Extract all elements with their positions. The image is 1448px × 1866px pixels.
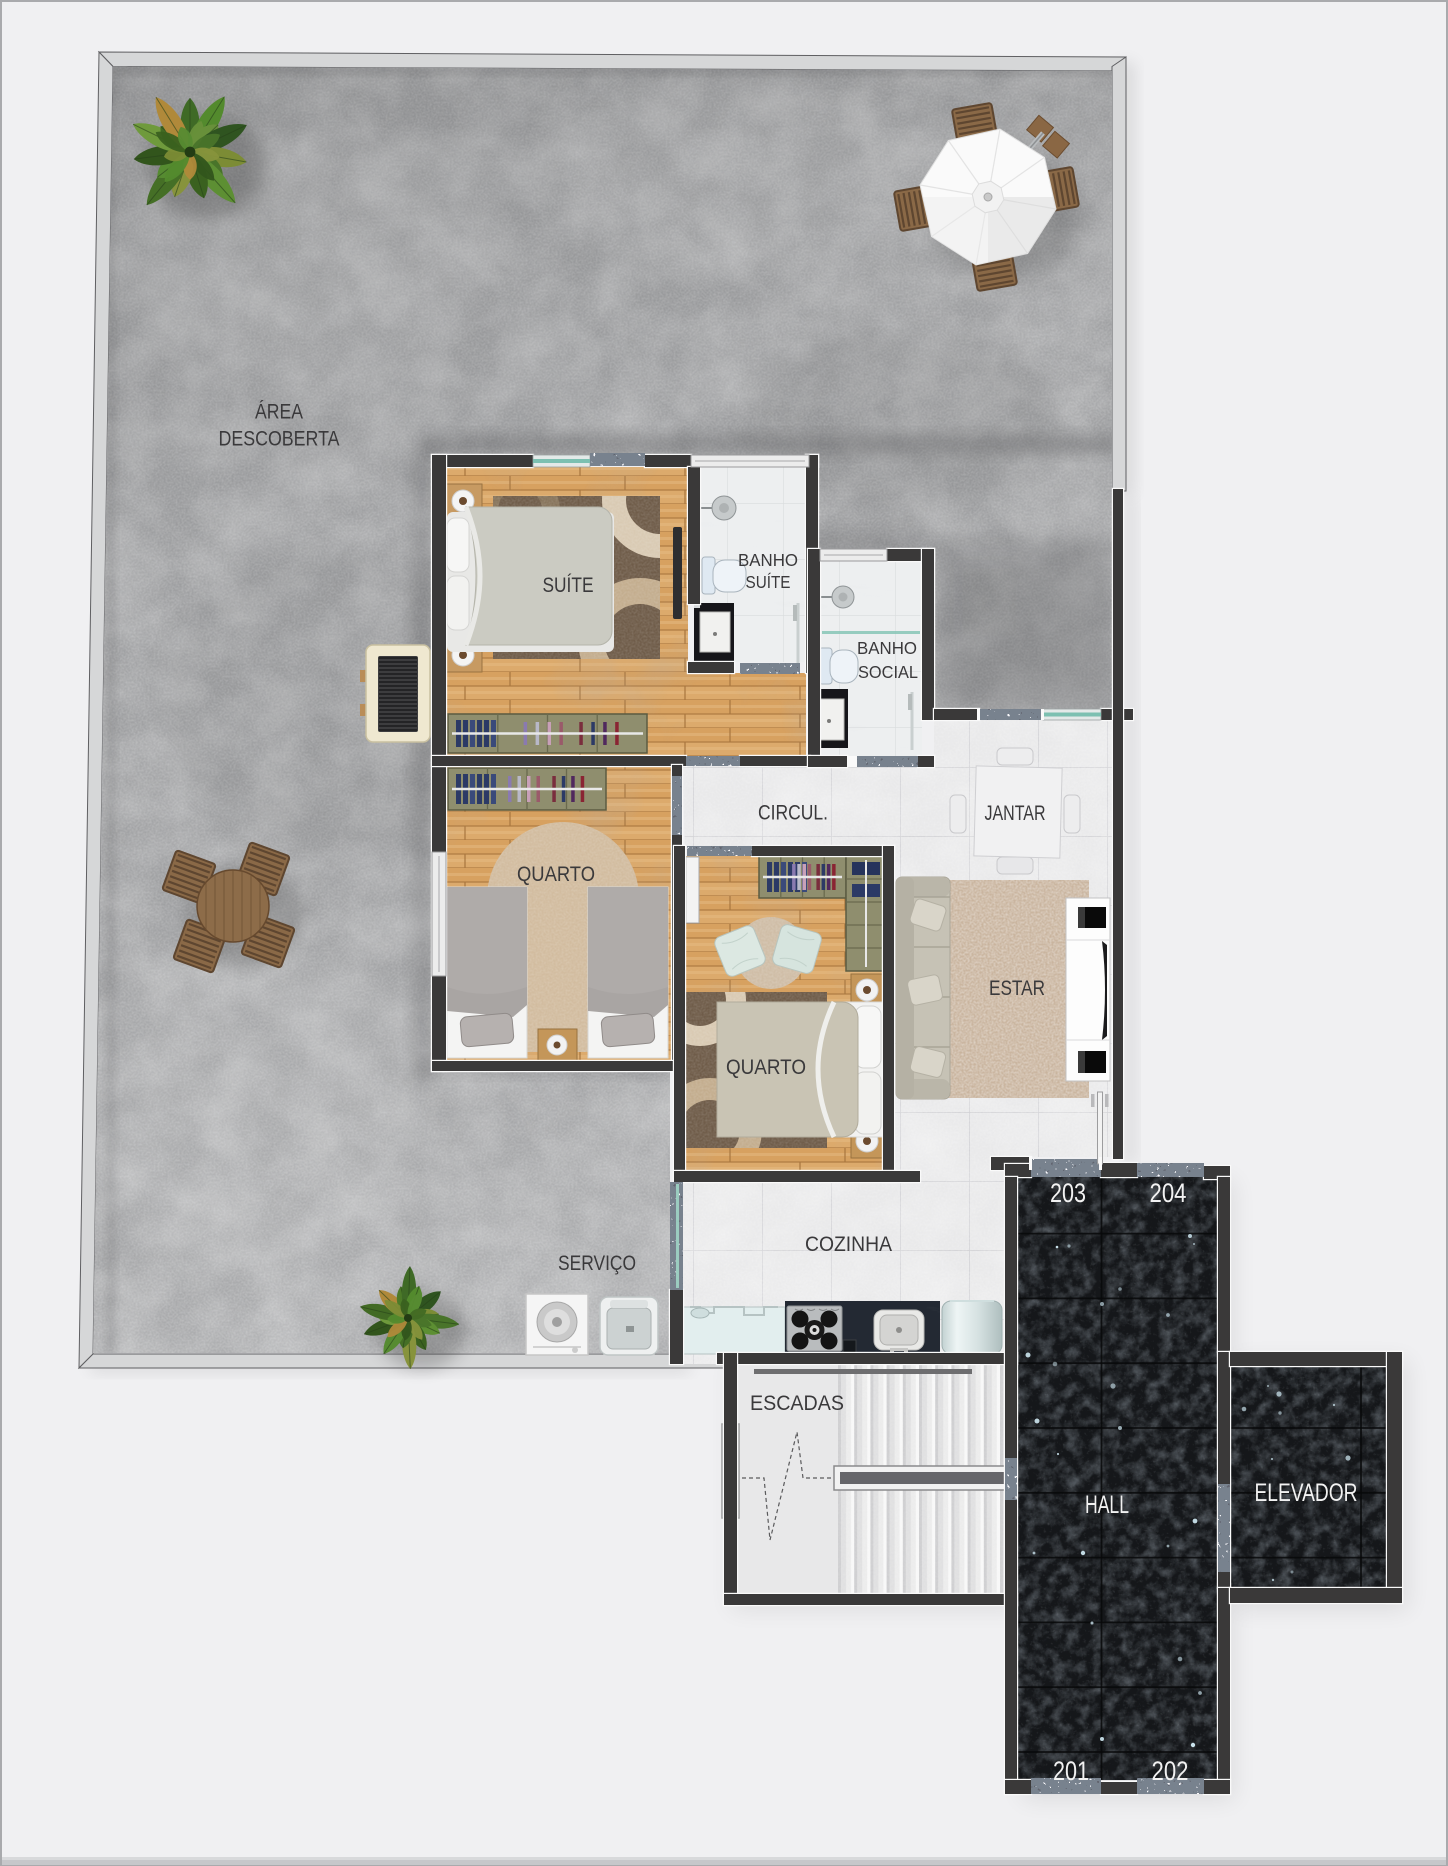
svg-text:BANHO: BANHO [738, 550, 798, 570]
svg-text:203: 203 [1050, 1178, 1086, 1208]
svg-text:COZINHA: COZINHA [805, 1232, 893, 1256]
svg-text:ÁREA: ÁREA [255, 399, 304, 424]
svg-text:BANHO: BANHO [857, 638, 917, 658]
svg-text:JANTAR: JANTAR [985, 801, 1046, 825]
svg-text:ESTAR: ESTAR [989, 976, 1045, 1000]
svg-text:SERVIÇO: SERVIÇO [558, 1251, 636, 1275]
svg-text:204: 204 [1150, 1178, 1187, 1208]
svg-text:DESCOBERTA: DESCOBERTA [219, 427, 341, 451]
svg-text:202: 202 [1152, 1756, 1189, 1786]
svg-text:HALL: HALL [1085, 1491, 1129, 1519]
svg-text:ELEVADOR: ELEVADOR [1255, 1479, 1358, 1507]
svg-text:QUARTO: QUARTO [517, 862, 595, 886]
svg-text:ESCADAS: ESCADAS [750, 1391, 844, 1415]
svg-text:201: 201 [1053, 1756, 1089, 1786]
svg-text:SUÍTE: SUÍTE [543, 572, 594, 597]
svg-text:CIRCUL.: CIRCUL. [758, 801, 828, 825]
svg-text:QUARTO: QUARTO [726, 1055, 806, 1079]
svg-text:SOCIAL: SOCIAL [858, 662, 918, 682]
svg-text:SUÍTE: SUÍTE [746, 572, 791, 592]
